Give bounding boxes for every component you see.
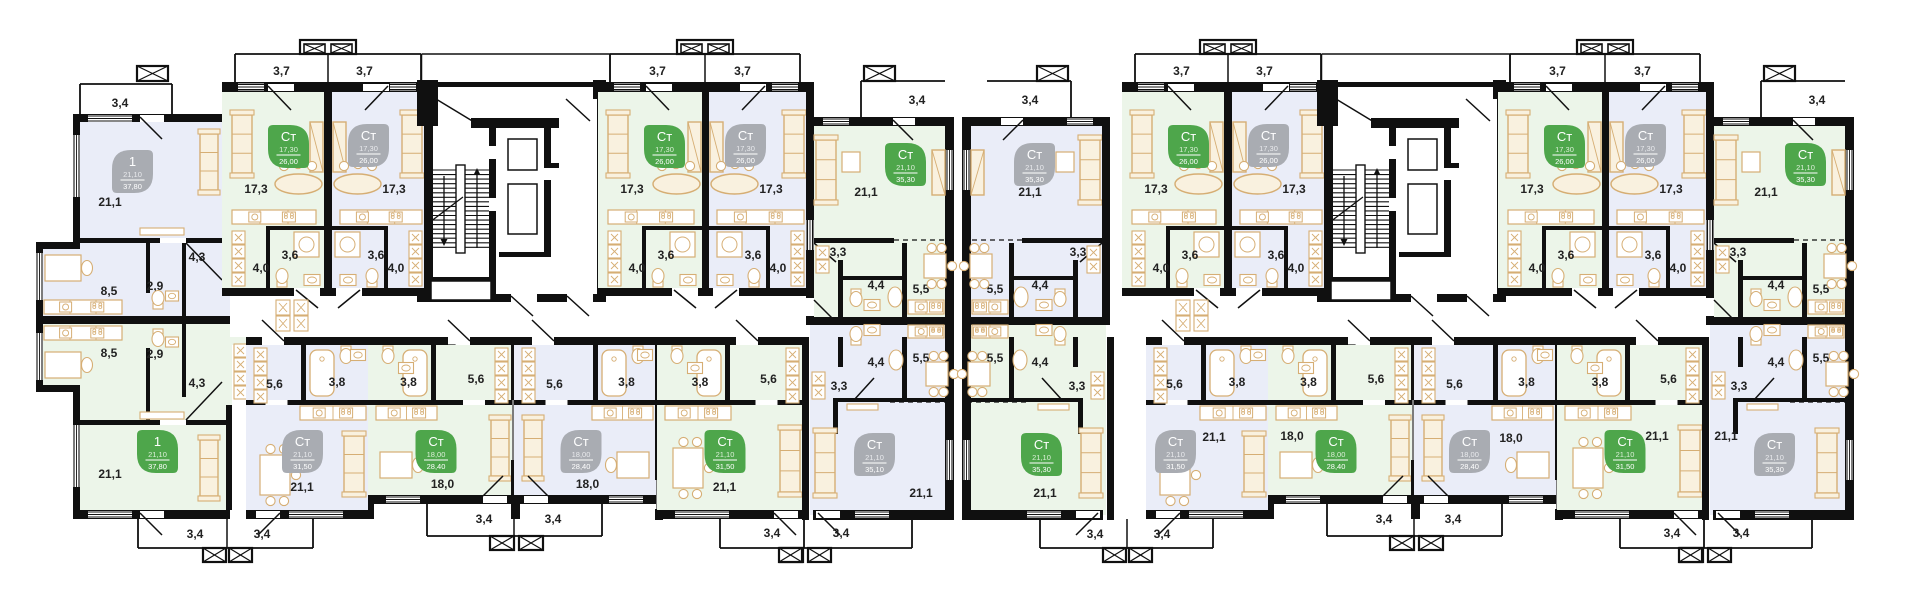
svg-text:3,6: 3,6 [368,248,385,262]
svg-text:4,4: 4,4 [868,278,885,292]
svg-text:17,3: 17,3 [244,182,268,196]
svg-text:3,7: 3,7 [734,64,751,78]
svg-text:35,30: 35,30 [1032,465,1051,474]
svg-text:4,0: 4,0 [1529,261,1546,275]
svg-text:3,8: 3,8 [1592,375,1609,389]
svg-text:3,6: 3,6 [282,248,299,262]
svg-text:Ст: Ст [1557,129,1572,144]
svg-text:35,10: 35,10 [865,465,884,474]
svg-text:35,30: 35,30 [896,175,915,184]
svg-text:17,30: 17,30 [1259,144,1278,153]
svg-text:18,00: 18,00 [427,450,446,459]
svg-text:3,8: 3,8 [1300,375,1317,389]
svg-text:4,3: 4,3 [189,250,206,264]
svg-text:18,0: 18,0 [1280,429,1304,443]
svg-text:21,10: 21,10 [148,450,167,459]
svg-text:2,9: 2,9 [147,347,164,361]
svg-text:28,40: 28,40 [427,462,446,471]
svg-text:3,4: 3,4 [1154,527,1171,541]
svg-text:Ст: Ст [867,437,882,452]
svg-text:3,4: 3,4 [764,526,781,540]
svg-text:4,0: 4,0 [388,261,405,275]
svg-text:Ст: Ст [1617,434,1632,449]
svg-text:5,6: 5,6 [760,372,777,386]
svg-text:21,10: 21,10 [1765,453,1784,462]
svg-text:3,8: 3,8 [1518,375,1535,389]
svg-text:3,6: 3,6 [1268,248,1285,262]
svg-text:4,0: 4,0 [1288,261,1305,275]
svg-text:21,10: 21,10 [1166,450,1185,459]
svg-text:26,00: 26,00 [736,156,755,165]
svg-text:31,50: 31,50 [716,462,735,471]
svg-text:5,6: 5,6 [1166,377,1183,391]
svg-text:Ст: Ст [1027,147,1042,162]
svg-text:21,1: 21,1 [1754,185,1778,199]
svg-text:18,00: 18,00 [572,450,591,459]
svg-text:37,80: 37,80 [123,182,142,191]
svg-text:17,3: 17,3 [1659,182,1683,196]
svg-text:21,10: 21,10 [123,170,142,179]
svg-text:31,50: 31,50 [1166,462,1185,471]
svg-text:28,40: 28,40 [1460,462,1479,471]
svg-text:35,30: 35,30 [1025,175,1044,184]
svg-text:Ст: Ст [898,147,913,162]
svg-text:5,6: 5,6 [1368,372,1385,386]
svg-text:21,1: 21,1 [1202,430,1226,444]
svg-text:3,3: 3,3 [1070,245,1087,259]
svg-text:4,4: 4,4 [1032,278,1049,292]
svg-text:21,1: 21,1 [854,185,878,199]
svg-text:18,0: 18,0 [576,477,600,491]
svg-text:17,30: 17,30 [1179,145,1198,154]
svg-text:21,1: 21,1 [98,467,122,481]
svg-text:26,00: 26,00 [279,157,298,166]
svg-text:3,8: 3,8 [400,375,417,389]
svg-text:31,50: 31,50 [1616,462,1635,471]
svg-text:3,3: 3,3 [830,245,847,259]
svg-text:17,30: 17,30 [655,145,674,154]
svg-text:21,1: 21,1 [98,195,122,209]
svg-text:3,6: 3,6 [1558,248,1575,262]
svg-text:5,6: 5,6 [468,372,485,386]
svg-text:17,30: 17,30 [1555,145,1574,154]
svg-text:4,4: 4,4 [868,355,885,369]
svg-text:3,4: 3,4 [254,527,271,541]
svg-text:3,4: 3,4 [112,96,129,110]
svg-text:26,00: 26,00 [359,156,378,165]
svg-text:3,3: 3,3 [1730,245,1747,259]
svg-text:21,10: 21,10 [293,450,312,459]
svg-text:Ст: Ст [1638,128,1653,143]
svg-text:35,30: 35,30 [1765,465,1784,474]
svg-text:26,00: 26,00 [1636,156,1655,165]
svg-text:Ст: Ст [1261,128,1276,143]
svg-text:1: 1 [154,434,161,449]
svg-text:21,10: 21,10 [865,453,884,462]
svg-text:5,6: 5,6 [1660,372,1677,386]
svg-text:17,3: 17,3 [1144,182,1168,196]
svg-text:3,6: 3,6 [658,248,675,262]
svg-text:Ст: Ст [1328,434,1343,449]
svg-text:3,7: 3,7 [356,64,373,78]
svg-text:18,0: 18,0 [431,477,455,491]
svg-text:3,6: 3,6 [1645,248,1662,262]
svg-text:21,10: 21,10 [896,163,915,172]
svg-text:3,3: 3,3 [831,379,848,393]
svg-text:Ст: Ст [717,434,732,449]
svg-text:8,5: 8,5 [101,284,118,298]
svg-text:3,3: 3,3 [1731,379,1748,393]
svg-text:4,0: 4,0 [629,261,646,275]
svg-text:17,3: 17,3 [1282,182,1306,196]
svg-text:17,30: 17,30 [1636,144,1655,153]
svg-text:4,3: 4,3 [189,376,206,390]
svg-text:18,00: 18,00 [1460,450,1479,459]
svg-text:17,3: 17,3 [620,182,644,196]
svg-text:3,7: 3,7 [1634,64,1651,78]
svg-text:21,10: 21,10 [1032,453,1051,462]
svg-text:3,3: 3,3 [1069,379,1086,393]
svg-text:26,00: 26,00 [1259,156,1278,165]
svg-text:3,4: 3,4 [545,512,562,526]
svg-text:21,1: 21,1 [1714,429,1738,443]
svg-text:3,7: 3,7 [1173,64,1190,78]
svg-text:3,4: 3,4 [187,527,204,541]
svg-text:3,4: 3,4 [1809,93,1826,107]
svg-text:28,40: 28,40 [1327,462,1346,471]
svg-text:5,6: 5,6 [1446,377,1463,391]
svg-text:21,10: 21,10 [1796,163,1815,172]
svg-text:26,00: 26,00 [655,157,674,166]
svg-text:5,6: 5,6 [266,377,283,391]
svg-text:21,10: 21,10 [1025,163,1044,172]
svg-text:3,8: 3,8 [692,375,709,389]
svg-text:4,0: 4,0 [770,261,787,275]
svg-text:3,7: 3,7 [1256,64,1273,78]
svg-text:4,4: 4,4 [1768,278,1785,292]
svg-text:3,4: 3,4 [1664,526,1681,540]
svg-text:21,10: 21,10 [716,450,735,459]
svg-text:Ст: Ст [1034,437,1049,452]
svg-text:Ст: Ст [1462,434,1477,449]
svg-text:3,4: 3,4 [476,512,493,526]
svg-text:3,7: 3,7 [1549,64,1566,78]
svg-text:21,1: 21,1 [909,486,933,500]
svg-text:21,1: 21,1 [1018,185,1042,199]
svg-text:Ст: Ст [1798,147,1813,162]
svg-text:Ст: Ст [281,129,296,144]
svg-text:17,3: 17,3 [1520,182,1544,196]
svg-text:28,40: 28,40 [572,462,591,471]
svg-text:21,1: 21,1 [713,480,737,494]
svg-text:21,1: 21,1 [290,480,314,494]
svg-text:Ст: Ст [1181,129,1196,144]
svg-text:21,1: 21,1 [1645,429,1669,443]
svg-text:3,4: 3,4 [909,93,926,107]
svg-text:21,10: 21,10 [1616,450,1635,459]
svg-text:Ст: Ст [295,434,310,449]
svg-text:3,4: 3,4 [1022,93,1039,107]
svg-text:8,5: 8,5 [101,346,118,360]
svg-text:21,1: 21,1 [1033,486,1057,500]
svg-text:3,4: 3,4 [833,526,850,540]
svg-text:26,00: 26,00 [1179,157,1198,166]
svg-text:3,8: 3,8 [1229,375,1246,389]
svg-text:4,0: 4,0 [253,261,270,275]
svg-text:31,50: 31,50 [293,462,312,471]
svg-text:17,30: 17,30 [279,145,298,154]
svg-text:3,4: 3,4 [1087,527,1104,541]
svg-text:17,30: 17,30 [359,144,378,153]
svg-text:18,0: 18,0 [1499,431,1523,445]
svg-text:4,4: 4,4 [1768,355,1785,369]
svg-text:4,0: 4,0 [1153,261,1170,275]
svg-text:3,4: 3,4 [1733,526,1750,540]
svg-text:3,6: 3,6 [745,248,762,262]
svg-text:Ст: Ст [1168,434,1183,449]
svg-text:Ст: Ст [738,128,753,143]
svg-text:26,00: 26,00 [1555,157,1574,166]
svg-text:3,7: 3,7 [273,64,290,78]
svg-text:3,4: 3,4 [1376,512,1393,526]
svg-text:Ст: Ст [428,434,443,449]
svg-text:17,30: 17,30 [736,144,755,153]
svg-text:17,3: 17,3 [382,182,406,196]
svg-text:5,6: 5,6 [546,377,563,391]
svg-text:3,6: 3,6 [1182,248,1199,262]
svg-text:Ст: Ст [573,434,588,449]
svg-text:37,80: 37,80 [148,462,167,471]
svg-text:1: 1 [129,154,136,169]
svg-text:3,8: 3,8 [329,375,346,389]
svg-text:18,00: 18,00 [1327,450,1346,459]
svg-text:Ст: Ст [1767,437,1782,452]
svg-text:3,4: 3,4 [1445,512,1462,526]
svg-text:4,4: 4,4 [1032,355,1049,369]
svg-text:3,7: 3,7 [649,64,666,78]
svg-text:Ст: Ст [657,129,672,144]
svg-text:3,8: 3,8 [618,375,635,389]
svg-text:35,30: 35,30 [1796,175,1815,184]
svg-text:17,3: 17,3 [759,182,783,196]
svg-text:Ст: Ст [361,128,376,143]
svg-text:4,0: 4,0 [1670,261,1687,275]
